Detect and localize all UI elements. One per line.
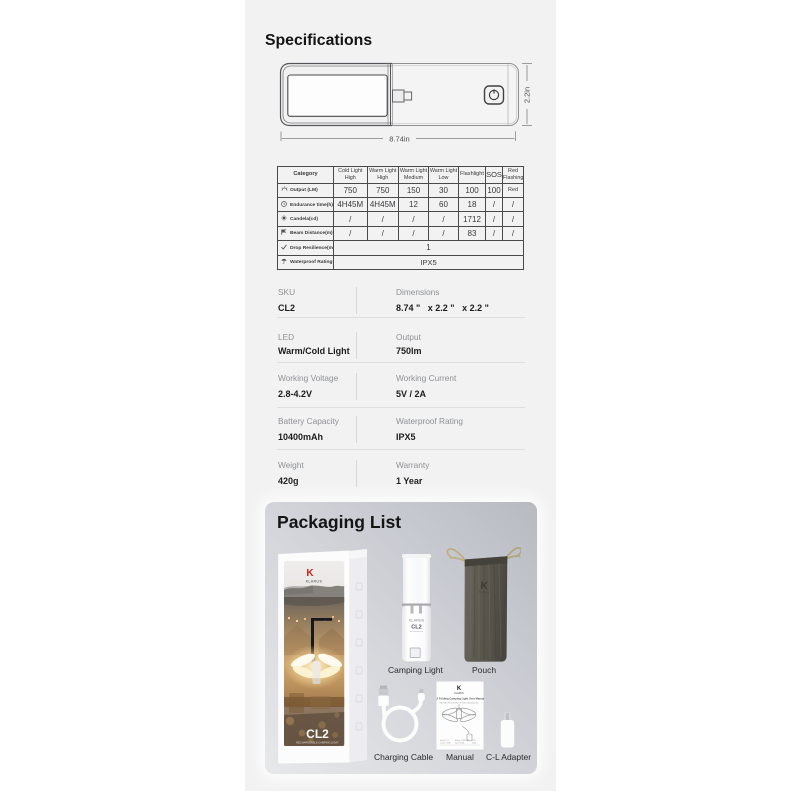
- svg-text:K: K: [306, 568, 314, 579]
- svg-text:KLARUS: KLARUS: [454, 692, 464, 695]
- svg-text:Input: 5V/2A: Input: 5V/2A: [455, 742, 465, 745]
- svg-text:420g: 420g: [472, 743, 476, 745]
- svg-text:Output: 750lm: Output: 750lm: [440, 742, 451, 745]
- svg-text:RECHARGEABLE CAMPING LIGHT: RECHARGEABLE CAMPING LIGHT: [296, 741, 339, 745]
- svg-text:CL2 Folding Camping Light User: CL2 Folding Camping Light User Manual: [436, 697, 484, 701]
- svg-text:KLARUS: KLARUS: [479, 590, 490, 595]
- svg-text:2.2in: 2.2in: [523, 87, 532, 103]
- svg-text:KLARUS: KLARUS: [306, 580, 323, 584]
- svg-text:CL2: CL2: [306, 727, 329, 741]
- svg-text:CL2: CL2: [411, 625, 421, 631]
- svg-text:EN / DE / FR / ES / RU / JP /: EN / DE / FR / ES / RU / JP / KR / CN in…: [440, 702, 479, 705]
- svg-text:KLARUS: KLARUS: [409, 619, 425, 623]
- svg-text:8.74in: 8.74in: [389, 135, 409, 144]
